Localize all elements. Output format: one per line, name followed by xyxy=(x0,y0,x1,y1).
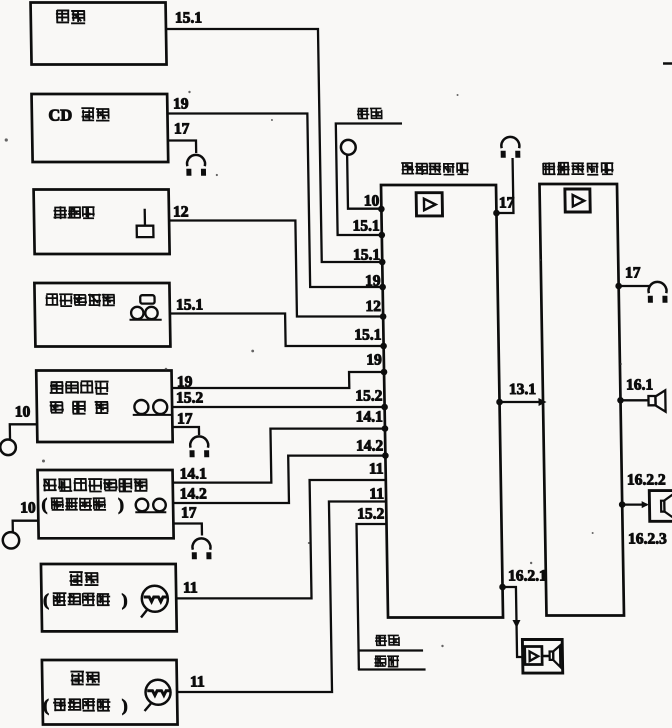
svg-text:19: 19 xyxy=(365,273,381,290)
svg-text:16.1: 16.1 xyxy=(626,377,653,394)
svg-text:16.2.3: 16.2.3 xyxy=(628,531,667,548)
svg-text:15.2: 15.2 xyxy=(357,506,385,523)
svg-text:11: 11 xyxy=(183,580,198,597)
svg-text:16.2.1: 16.2.1 xyxy=(508,568,547,585)
svg-text:15.2: 15.2 xyxy=(176,390,204,407)
svg-text:CD: CD xyxy=(48,106,72,125)
svg-text:11: 11 xyxy=(369,486,384,503)
svg-text:17: 17 xyxy=(181,505,197,522)
svg-text:): ) xyxy=(122,591,128,610)
svg-text:15.1: 15.1 xyxy=(352,218,379,235)
svg-text:(: ( xyxy=(43,591,49,610)
svg-text:14.1: 14.1 xyxy=(180,466,207,483)
svg-text:12: 12 xyxy=(173,204,189,221)
svg-text:16.2.2: 16.2.2 xyxy=(627,472,666,489)
svg-text:19: 19 xyxy=(173,96,189,113)
svg-text:(: ( xyxy=(43,696,49,715)
svg-text:13.1: 13.1 xyxy=(509,381,536,398)
svg-text:11: 11 xyxy=(190,674,205,691)
svg-text:(: ( xyxy=(41,495,47,514)
svg-text:17: 17 xyxy=(625,265,641,282)
svg-text:15.1: 15.1 xyxy=(354,327,381,344)
svg-text:11: 11 xyxy=(369,461,384,478)
svg-text:14.2: 14.2 xyxy=(179,486,207,503)
svg-text:15.2: 15.2 xyxy=(355,388,383,405)
svg-text:10: 10 xyxy=(15,404,31,421)
svg-text:15.1: 15.1 xyxy=(176,297,203,314)
svg-text:15.1: 15.1 xyxy=(353,247,380,264)
svg-text:17: 17 xyxy=(177,411,193,428)
svg-text:17: 17 xyxy=(174,121,190,138)
svg-text:17: 17 xyxy=(499,195,515,212)
svg-text:19: 19 xyxy=(366,352,382,369)
svg-text:15.1: 15.1 xyxy=(175,10,202,27)
svg-text:14.2: 14.2 xyxy=(356,438,384,455)
svg-text:12: 12 xyxy=(365,298,381,315)
svg-text:19: 19 xyxy=(177,374,193,391)
svg-text:10: 10 xyxy=(364,193,380,210)
svg-text:): ) xyxy=(122,696,128,715)
svg-text:14.1: 14.1 xyxy=(356,409,383,426)
svg-text:): ) xyxy=(118,495,124,514)
svg-text:10: 10 xyxy=(20,500,36,517)
